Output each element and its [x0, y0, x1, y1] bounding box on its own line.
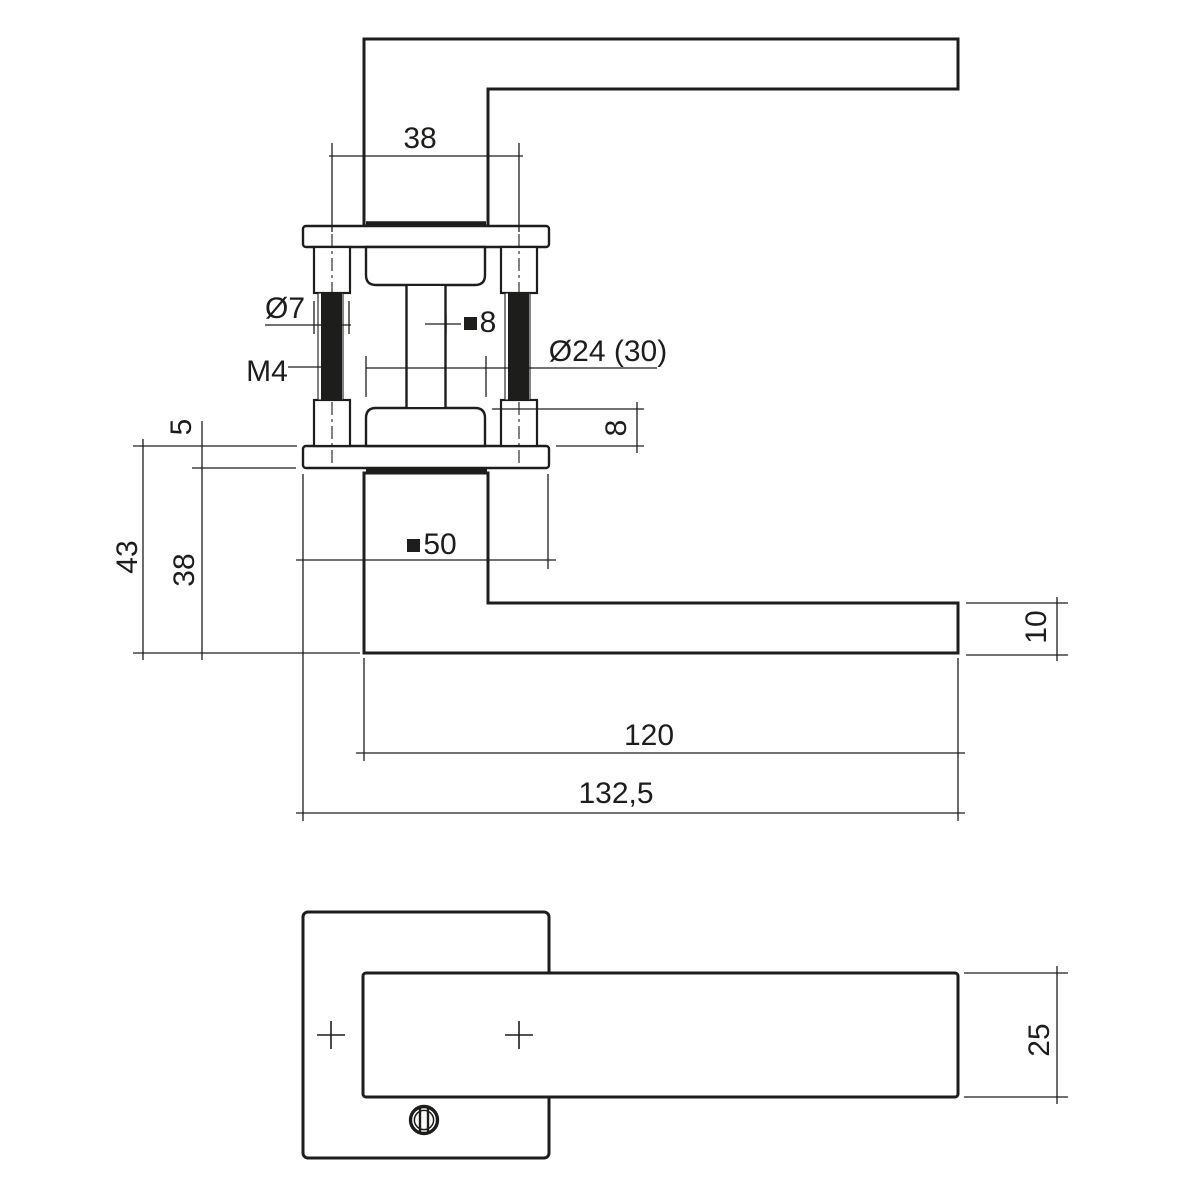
square-section-symbol [407, 539, 420, 552]
label-lever-thickness: 10 [1022, 610, 1052, 643]
label-rosette-square: 50 [423, 530, 456, 560]
label-total-length: 132,5 [578, 779, 653, 809]
label-spindle-square: 8 [480, 308, 497, 338]
door-handle-technical-drawing [0, 0, 1200, 1200]
label-hole-spacing: 38 [403, 124, 436, 154]
upper-lever-outline [364, 39, 958, 226]
spindle [407, 285, 446, 408]
label-neck-height: 38 [170, 553, 200, 586]
lower-lever-outline [364, 473, 958, 653]
label-hub-height: 8 [602, 420, 632, 437]
right-screw [501, 234, 537, 464]
label-lever-width: 25 [1025, 1023, 1055, 1056]
label-total-height: 43 [113, 540, 143, 573]
technical-drawing-canvas: 38 Ø7 M4 8 Ø24 (30) 8 5 43 38 10 50 120 … [0, 0, 1200, 1200]
label-sleeve-diameter: Ø7 [265, 294, 305, 324]
screw-slot-icon [411, 1107, 438, 1134]
label-lever-length: 120 [624, 721, 674, 751]
front-lever [363, 973, 958, 1097]
side-view-dimensions [133, 143, 1068, 821]
label-neck-diameter: Ø24 (30) [549, 337, 667, 367]
upper-hub [366, 247, 485, 285]
lower-hub [366, 408, 485, 446]
square-section-symbol [464, 317, 477, 330]
lower-rosette-edge [303, 446, 549, 468]
left-screw [314, 234, 350, 464]
upper-rosette-edge [303, 226, 549, 247]
label-thread: M4 [246, 357, 288, 387]
front-view [303, 912, 1068, 1158]
label-rosette-thickness: 5 [167, 419, 197, 436]
